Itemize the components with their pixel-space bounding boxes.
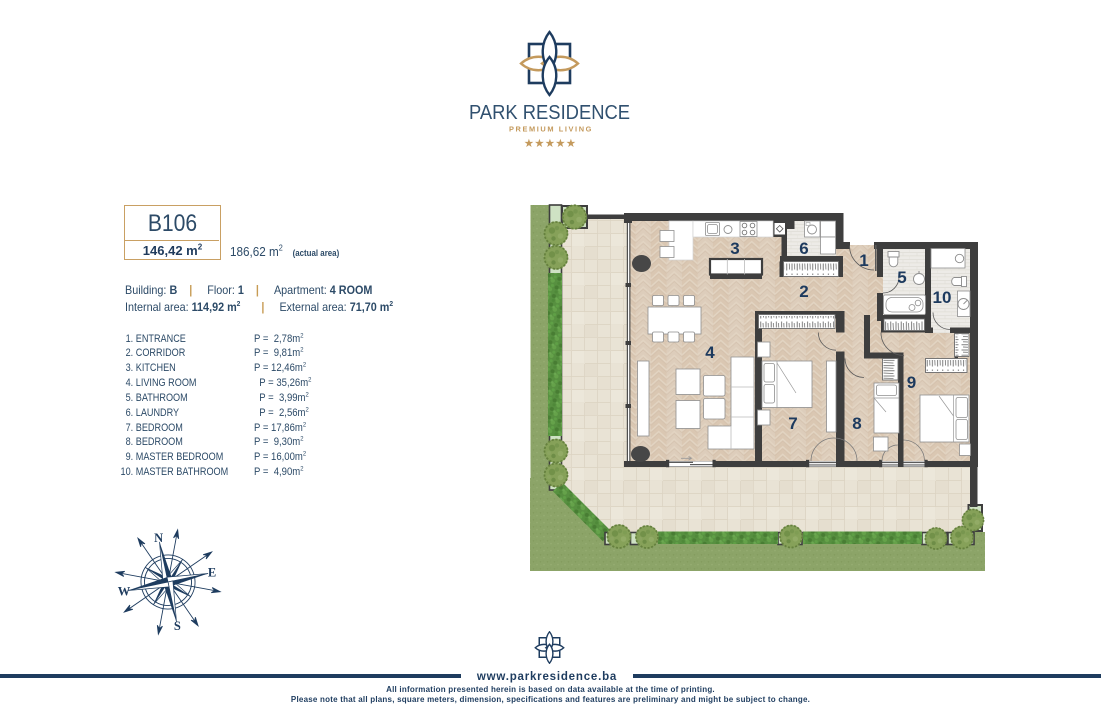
svg-text:5: 5 — [897, 268, 906, 287]
svg-text:N: N — [154, 531, 163, 545]
svg-text:10: 10 — [933, 288, 952, 307]
svg-text:PREMIUM LIVING: PREMIUM LIVING — [509, 125, 593, 134]
svg-text:9: 9 — [907, 373, 916, 392]
svg-text:7: 7 — [788, 414, 797, 433]
svg-text:E: E — [208, 566, 216, 580]
svg-text:8: 8 — [852, 414, 861, 433]
svg-text:3: 3 — [730, 239, 739, 258]
svg-text:PARK RESIDENCE: PARK RESIDENCE — [469, 102, 630, 124]
svg-text:2: 2 — [799, 282, 808, 301]
svg-text:S: S — [174, 619, 181, 633]
svg-text:6: 6 — [799, 239, 808, 258]
svg-text:★★★★★: ★★★★★ — [524, 138, 577, 150]
svg-text:1: 1 — [859, 251, 868, 270]
svg-text:W: W — [118, 584, 131, 598]
svg-text:4: 4 — [705, 343, 715, 362]
